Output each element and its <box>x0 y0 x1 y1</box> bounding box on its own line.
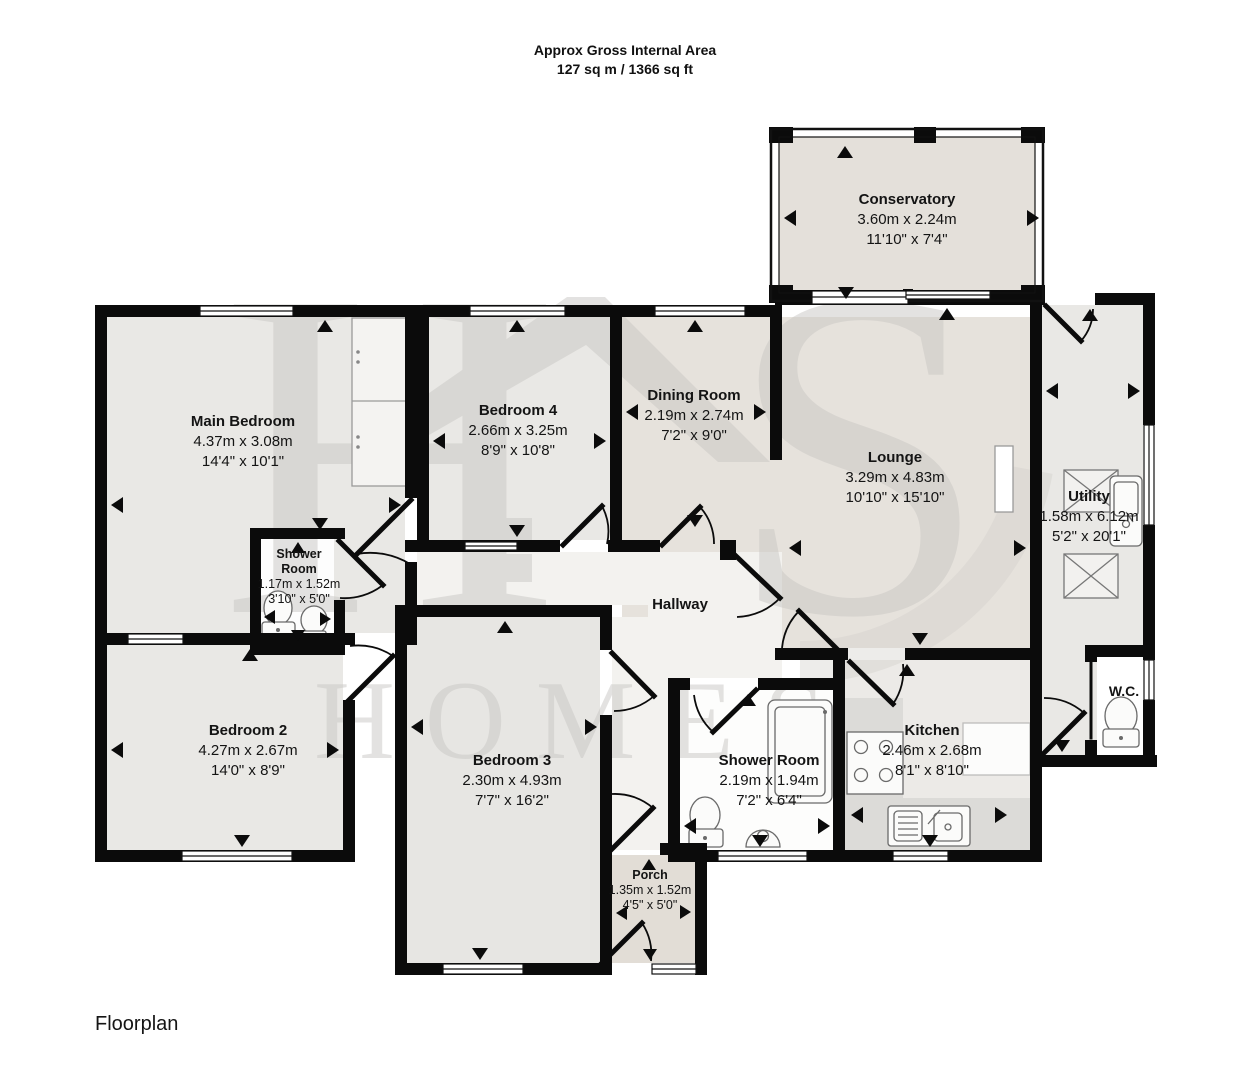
window <box>182 851 292 861</box>
watermark-pane <box>506 554 532 582</box>
title-line2: 127 sq m / 1366 sq ft <box>534 60 716 79</box>
room-label-shower1: Shower Room 1.17m x 1.52m 3'10" x 5'0" <box>257 547 341 607</box>
window <box>200 306 293 316</box>
window <box>1144 425 1154 525</box>
room-label-utility: Utility 1.58m x 6.12m 5'2" x 20'1" <box>1039 487 1138 547</box>
room-label-kitchen: Kitchen 2.46m x 2.68m 8'1" x 8'10" <box>882 721 981 781</box>
lounge-alcove <box>995 446 1013 512</box>
window <box>128 634 183 644</box>
room-label-shower2: Shower Room 2.19m x 1.94m 7'2" x 6'4" <box>719 751 820 811</box>
window <box>1144 660 1154 700</box>
floorplan-caption: Floorplan <box>95 1013 178 1036</box>
room-label-main-bedroom: Main Bedroom 4.37m x 3.08m 14'4" x 10'1" <box>191 412 295 472</box>
room-label-bedroom4: Bedroom 4 2.66m x 3.25m 8'9" x 10'8" <box>468 401 567 461</box>
window <box>443 964 523 974</box>
window <box>470 306 565 316</box>
window <box>812 291 908 304</box>
room-label-hallway: Hallway <box>652 595 708 615</box>
room-label-conservatory: Conservatory 3.60m x 2.24m 11'10" x 7'4" <box>857 190 956 250</box>
page-title: Approx Gross Internal Area 127 sq m / 13… <box>534 41 716 79</box>
hatch <box>465 542 517 550</box>
room-label-lounge: Lounge 3.29m x 4.83m 10'10" x 15'10" <box>845 448 944 508</box>
watermark-pane <box>472 554 498 582</box>
window <box>652 964 696 974</box>
title-line1: Approx Gross Internal Area <box>534 41 716 60</box>
room-label-dining: Dining Room 2.19m x 2.74m 7'2" x 9'0" <box>644 386 743 446</box>
window <box>718 851 807 861</box>
floorplan-page: H S HOMES <box>0 0 1247 1080</box>
sliding-door <box>906 291 990 299</box>
room-label-wc: W.C. <box>1109 683 1139 699</box>
utility-appliance-2 <box>1064 554 1118 598</box>
window <box>893 851 948 861</box>
room-label-bedroom2: Bedroom 2 4.27m x 2.67m 14'0" x 8'9" <box>198 721 297 781</box>
wc-toilet <box>1103 697 1139 747</box>
window <box>655 306 745 316</box>
room-label-bedroom3: Bedroom 3 2.30m x 4.93m 7'7" x 16'2" <box>462 751 561 811</box>
room-label-porch: Porch 1.35m x 1.52m 4'5" x 5'0" <box>609 868 692 913</box>
